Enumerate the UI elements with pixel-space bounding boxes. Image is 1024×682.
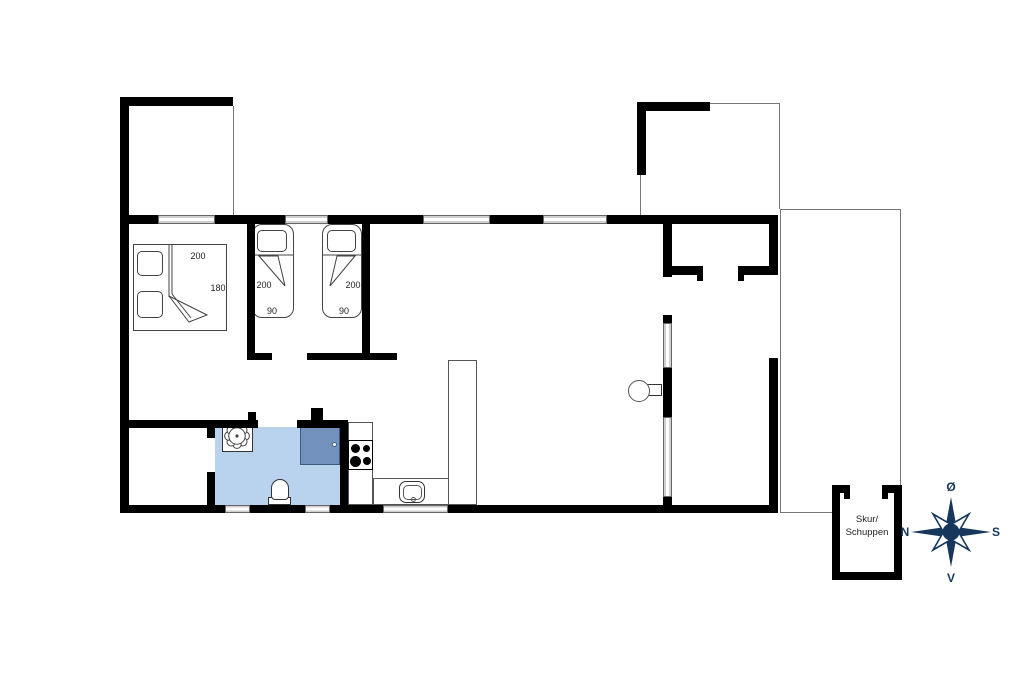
wall — [832, 572, 902, 580]
compass-label-west: V — [947, 571, 955, 585]
door-jamb — [844, 493, 850, 499]
wall — [330, 505, 383, 513]
shed-label-line1: Skur/ — [832, 513, 902, 526]
stove-cooktop — [348, 440, 373, 470]
double-bed-depth-label: 180 — [210, 283, 225, 293]
window — [383, 505, 448, 513]
floor-plan: 200 180 200 90 200 90 — [0, 0, 1024, 682]
wall — [307, 353, 397, 360]
wall — [328, 215, 423, 224]
shed-label: Skur/ Schuppen — [832, 513, 902, 539]
wall — [448, 505, 778, 513]
window — [225, 505, 250, 513]
door-jamb — [882, 493, 888, 499]
terrace-topright-left-edge — [640, 175, 641, 215]
compass-center — [943, 524, 960, 541]
single-bed-length-label: 200 — [345, 280, 360, 290]
burner — [351, 444, 360, 453]
burner — [363, 445, 370, 452]
kitchen-sink — [399, 481, 425, 503]
window — [543, 215, 607, 224]
terrace-topright-right-edge — [779, 103, 780, 209]
wall — [207, 472, 215, 505]
window — [663, 417, 672, 497]
door-jamb — [248, 412, 256, 420]
kitchen-counter-right — [448, 360, 477, 505]
window — [285, 215, 328, 224]
window — [305, 505, 330, 513]
burner — [350, 456, 361, 467]
compass-label-east: Ø — [946, 480, 955, 494]
terrace-right — [780, 209, 901, 513]
wall — [250, 505, 305, 513]
wall — [120, 505, 225, 513]
single-bed-width-label: 90 — [339, 306, 349, 316]
shed-label-line2: Schuppen — [832, 526, 902, 539]
terrace-topright-top-edge — [710, 103, 780, 104]
toilet — [271, 479, 289, 500]
wall — [340, 420, 348, 513]
wall — [769, 224, 778, 275]
door-jamb — [697, 275, 703, 281]
shower — [300, 425, 340, 465]
shower-drain — [332, 442, 337, 447]
wall — [490, 215, 543, 224]
window — [423, 215, 490, 224]
terrace-topleft-edge — [233, 106, 234, 215]
wall — [215, 215, 285, 224]
single-bed-blanket — [252, 224, 294, 318]
wall — [120, 97, 129, 513]
wall — [207, 428, 215, 438]
single-bed-width-label: 90 — [267, 306, 277, 316]
wall — [120, 215, 158, 224]
wall — [120, 97, 233, 106]
compass-label-south: S — [992, 525, 1000, 539]
wall — [663, 315, 672, 323]
wall — [769, 358, 778, 510]
wall — [120, 420, 258, 428]
wall — [663, 266, 703, 275]
wood-stove — [628, 380, 650, 402]
wall — [663, 368, 672, 417]
kitchen-sink-drain — [411, 497, 416, 502]
burner — [363, 457, 371, 465]
wall — [247, 353, 272, 360]
wall — [637, 102, 646, 175]
single-bed-length-label: 200 — [256, 280, 271, 290]
wall — [607, 215, 778, 224]
wall — [637, 102, 710, 111]
wall — [247, 224, 255, 360]
wall — [362, 224, 370, 360]
single-bed-blanket — [322, 224, 362, 318]
window — [663, 323, 672, 368]
window — [158, 215, 215, 224]
double-bed-width-label: 200 — [190, 251, 205, 261]
door-jamb — [738, 275, 744, 281]
bathroom-sink-drain — [235, 434, 238, 437]
wall — [663, 497, 672, 513]
door-jamb — [311, 408, 323, 428]
compass-label-north: N — [901, 525, 910, 539]
